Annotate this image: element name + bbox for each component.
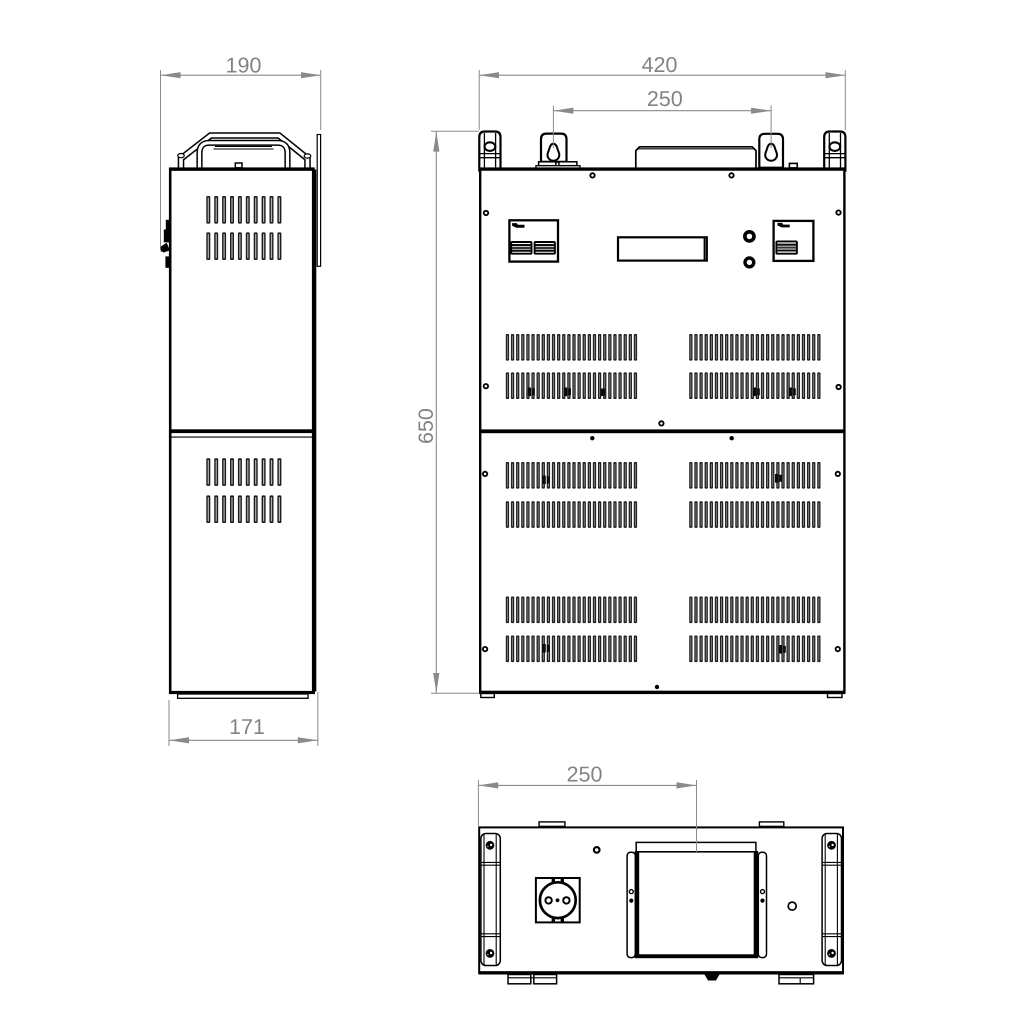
svg-text:650: 650 [414,408,438,444]
